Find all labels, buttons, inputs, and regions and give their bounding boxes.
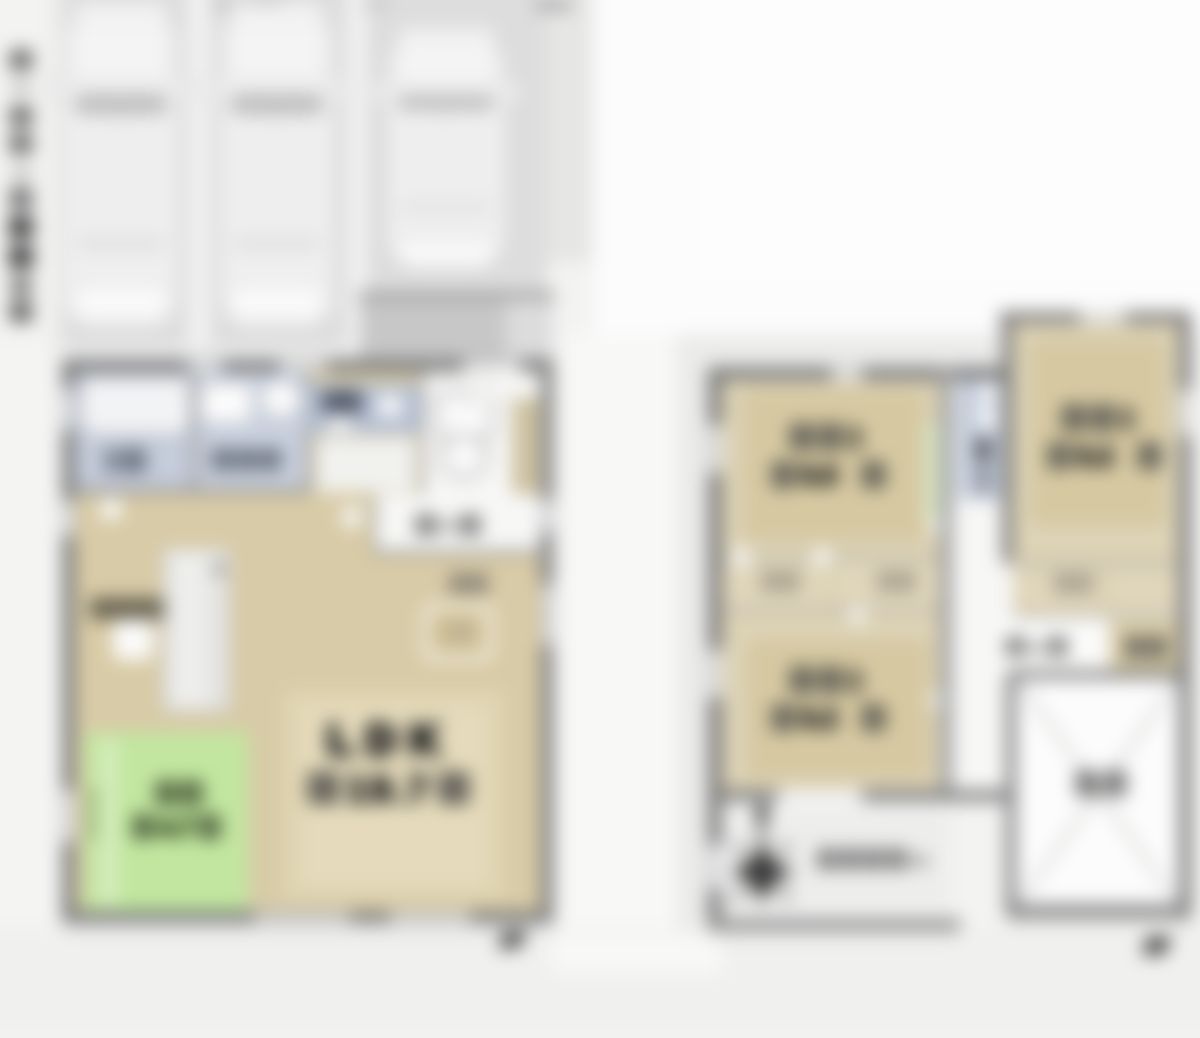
- svg-text:5.5: 5.5: [801, 460, 837, 490]
- svg-text:LDK: LDK: [327, 716, 452, 763]
- svg-text:5.2: 5.2: [1077, 441, 1113, 471]
- svg-text:4.7: 4.7: [159, 814, 194, 842]
- svg-text:1F: 1F: [499, 927, 525, 952]
- svg-text:2F: 2F: [1143, 933, 1170, 958]
- svg-text:5.2: 5.2: [801, 703, 837, 733]
- svg-text:19.7: 19.7: [347, 769, 431, 810]
